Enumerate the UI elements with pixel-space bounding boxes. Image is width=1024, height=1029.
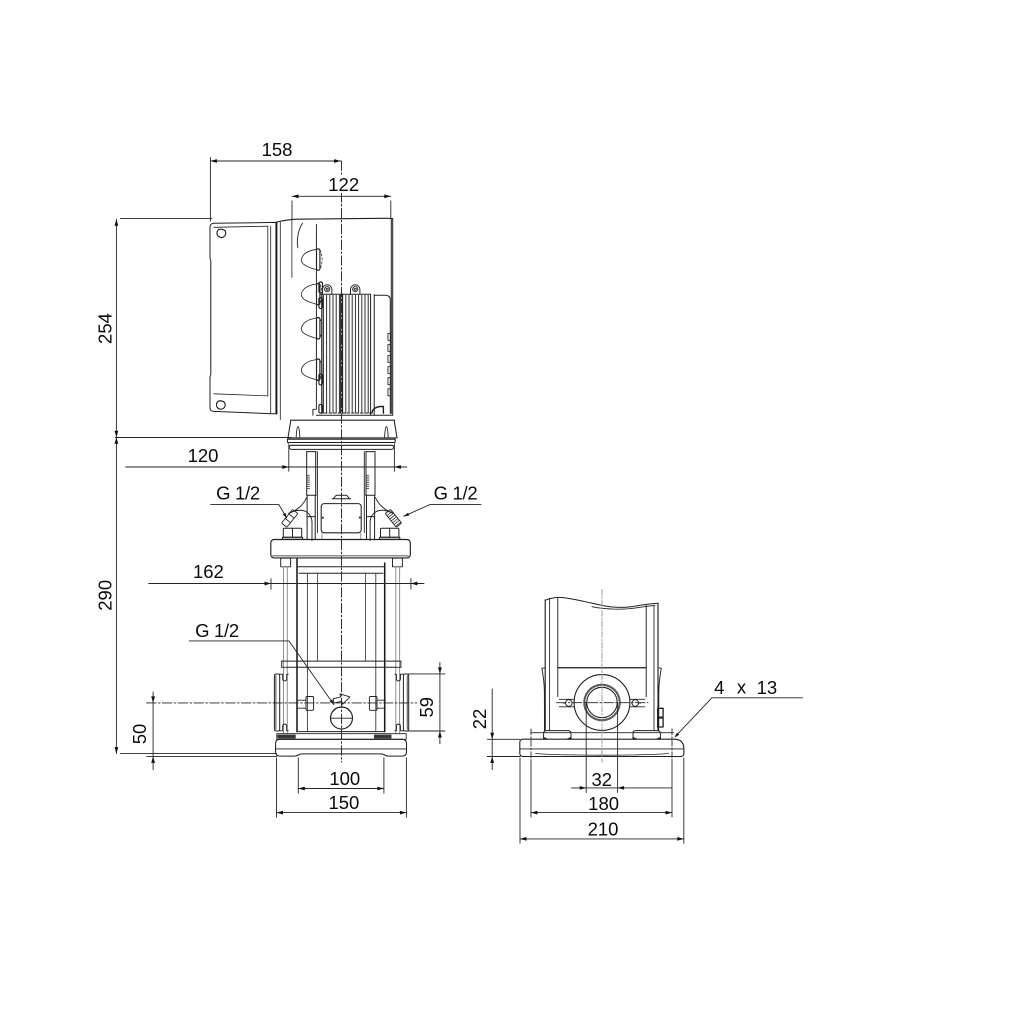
svg-text:120: 120 xyxy=(188,445,219,466)
svg-text:50: 50 xyxy=(129,724,150,745)
svg-text:122: 122 xyxy=(328,174,359,195)
svg-text:x: x xyxy=(737,677,747,698)
svg-text:G 1/2: G 1/2 xyxy=(195,620,239,641)
svg-text:150: 150 xyxy=(328,792,359,813)
svg-text:254: 254 xyxy=(94,313,115,344)
svg-text:G 1/2: G 1/2 xyxy=(434,483,478,504)
svg-text:210: 210 xyxy=(588,819,619,840)
svg-text:162: 162 xyxy=(193,561,224,582)
svg-text:22: 22 xyxy=(469,709,490,730)
svg-text:158: 158 xyxy=(262,139,293,160)
svg-text:32: 32 xyxy=(592,769,613,790)
svg-text:100: 100 xyxy=(329,768,360,789)
svg-text:4: 4 xyxy=(714,677,724,698)
svg-text:G 1/2: G 1/2 xyxy=(216,483,260,504)
svg-text:59: 59 xyxy=(416,697,437,718)
svg-text:290: 290 xyxy=(94,580,115,611)
svg-text:13: 13 xyxy=(757,677,778,698)
svg-text:180: 180 xyxy=(588,793,619,814)
